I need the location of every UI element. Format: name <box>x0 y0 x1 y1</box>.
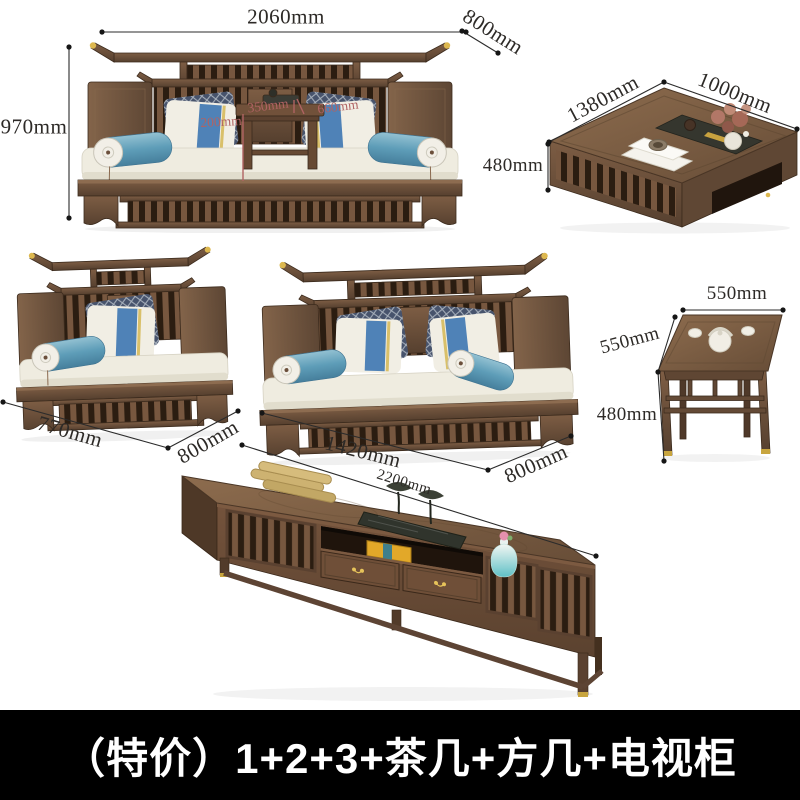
double-sofa-photo <box>248 239 586 475</box>
caption-text: （特价）1+2+3+茶几+方几+电视柜 <box>63 725 737 786</box>
square-tea-table-photo <box>650 303 795 463</box>
sofa3-tea-table-height-dim: 200mm <box>200 113 242 131</box>
sofa3-height-dim: 970mm <box>1 115 68 140</box>
sofa3-width-dim: 2060mm <box>247 5 325 30</box>
caption-bar: （特价）1+2+3+茶几+方几+电视柜 <box>0 710 800 800</box>
square-table-width-dim: 550mm <box>707 283 768 305</box>
tv-cabinet-photo <box>168 452 608 707</box>
product-dimension-sheet: 2060mm 970mm 800mm 350mm 660mm 200mm 138… <box>0 0 800 800</box>
three-seat-sofa-photo <box>70 38 470 233</box>
coffee-table-height-dim: 480mm <box>483 155 544 177</box>
square-table-height-dim: 480mm <box>597 404 658 426</box>
